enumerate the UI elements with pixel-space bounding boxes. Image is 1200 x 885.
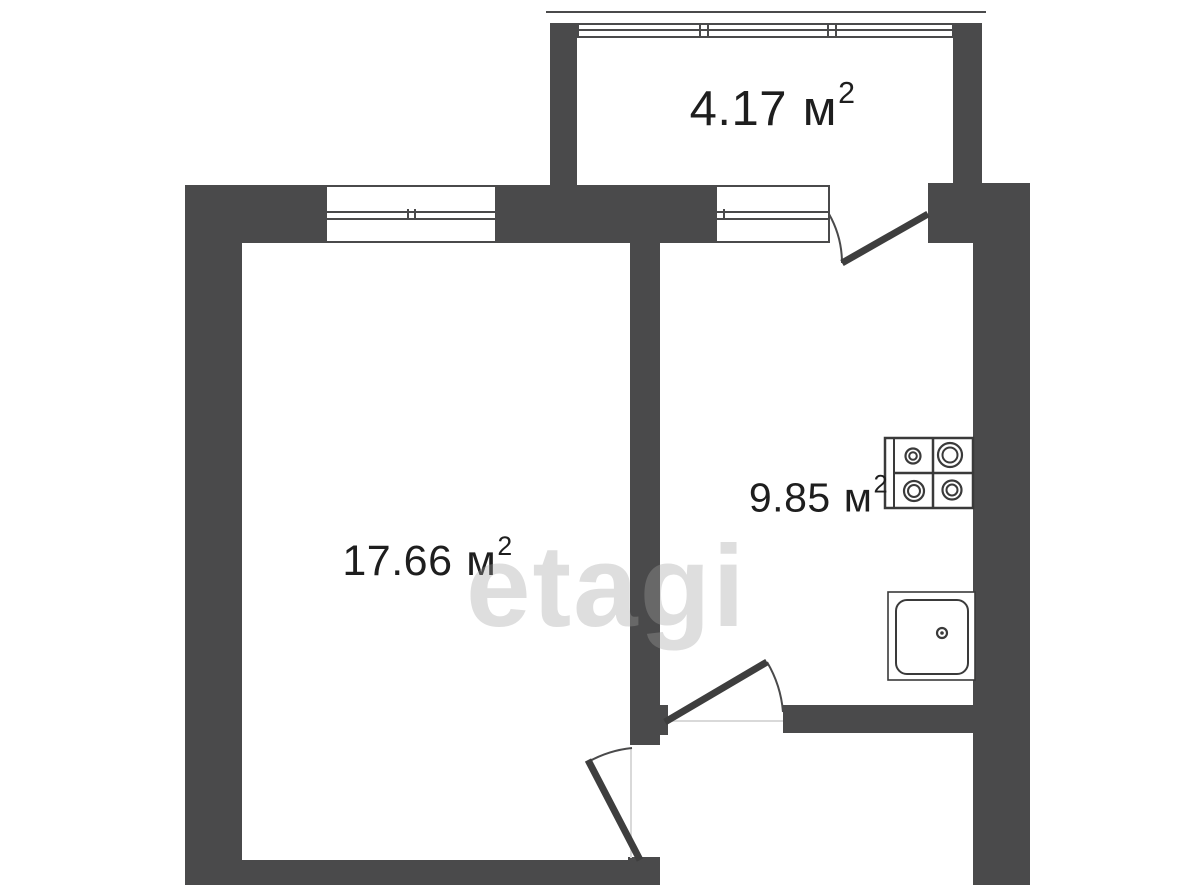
kitchen-area-label: 9.85м2 (749, 475, 887, 522)
room-door-arc (588, 748, 632, 762)
kitchen-area-unit: м (844, 475, 873, 521)
etagi-watermark: etagi (466, 528, 747, 644)
kitchen-area-sup: 2 (874, 470, 889, 498)
balcony-door-arc (829, 214, 842, 263)
balcony-area-unit: м (803, 82, 837, 136)
balcony-area-sup: 2 (838, 75, 855, 109)
balcony-area-label: 4.17м2 (690, 81, 855, 137)
stove-icon (885, 438, 973, 508)
doors-and-fixtures-layer (0, 0, 1200, 885)
sink-icon (888, 592, 975, 680)
kitchen-area-value: 9.85 (749, 475, 831, 521)
room-door-leaf (588, 760, 640, 860)
living-room-area-value: 17.66 (342, 537, 452, 585)
kitchen-door-leaf (665, 662, 767, 722)
floor-plan: 4.17м2 17.66м2 9.85м2 etagi (0, 0, 1200, 885)
kitchen-door-arc (767, 662, 783, 712)
balcony-door-leaf (842, 214, 928, 263)
balcony-area-value: 4.17 (690, 82, 787, 136)
